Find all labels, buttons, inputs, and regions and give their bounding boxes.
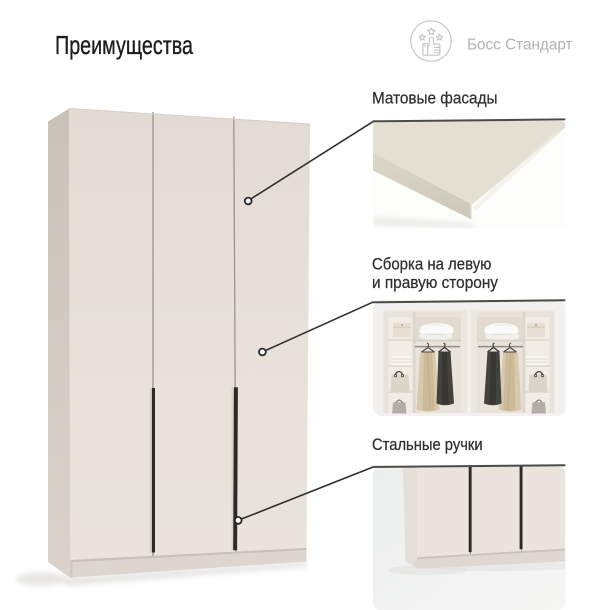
svg-text:Преимущества: Преимущества	[55, 30, 193, 60]
svg-text:Матовые фасады: Матовые фасады	[372, 89, 498, 107]
svg-text:Стальные ручки: Стальные ручки	[372, 436, 483, 454]
svg-text:Сборка на левую: Сборка на левую	[372, 255, 491, 273]
svg-text:и правую сторону: и правую сторону	[372, 274, 499, 292]
svg-text:Босс Стандарт: Босс Стандарт	[467, 36, 573, 53]
